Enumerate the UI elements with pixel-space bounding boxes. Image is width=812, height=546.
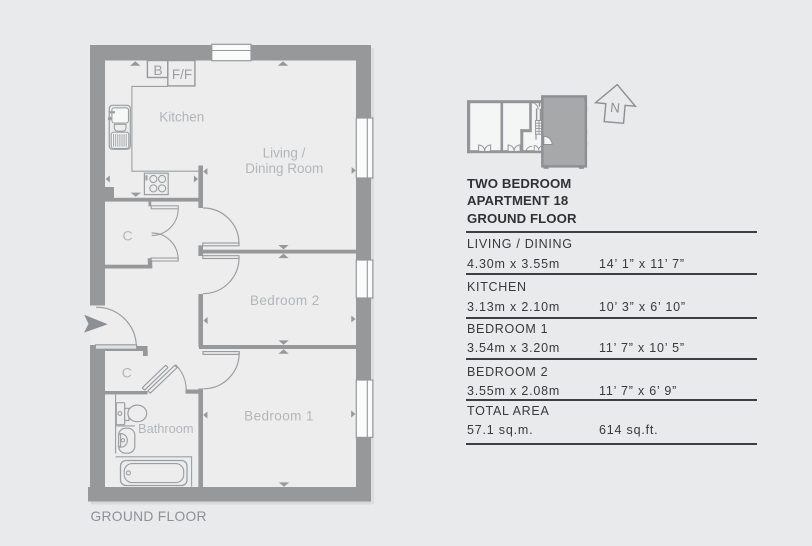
svg-text:B: B (153, 62, 162, 78)
svg-text:Living /: Living / (263, 146, 306, 161)
svg-text:N: N (610, 100, 621, 116)
svg-text:Kitchen: Kitchen (159, 109, 204, 124)
svg-text:Bathroom: Bathroom (138, 421, 193, 436)
svg-text:Dining Room: Dining Room (245, 161, 323, 176)
svg-text:GROUND FLOOR: GROUND FLOOR (91, 509, 207, 524)
svg-text:C: C (122, 227, 132, 243)
svg-text:F/F: F/F (172, 67, 192, 82)
svg-text:Bedroom 1: Bedroom 1 (244, 409, 314, 424)
svg-text:Bedroom 2: Bedroom 2 (250, 293, 320, 308)
svg-text:C: C (122, 364, 132, 380)
